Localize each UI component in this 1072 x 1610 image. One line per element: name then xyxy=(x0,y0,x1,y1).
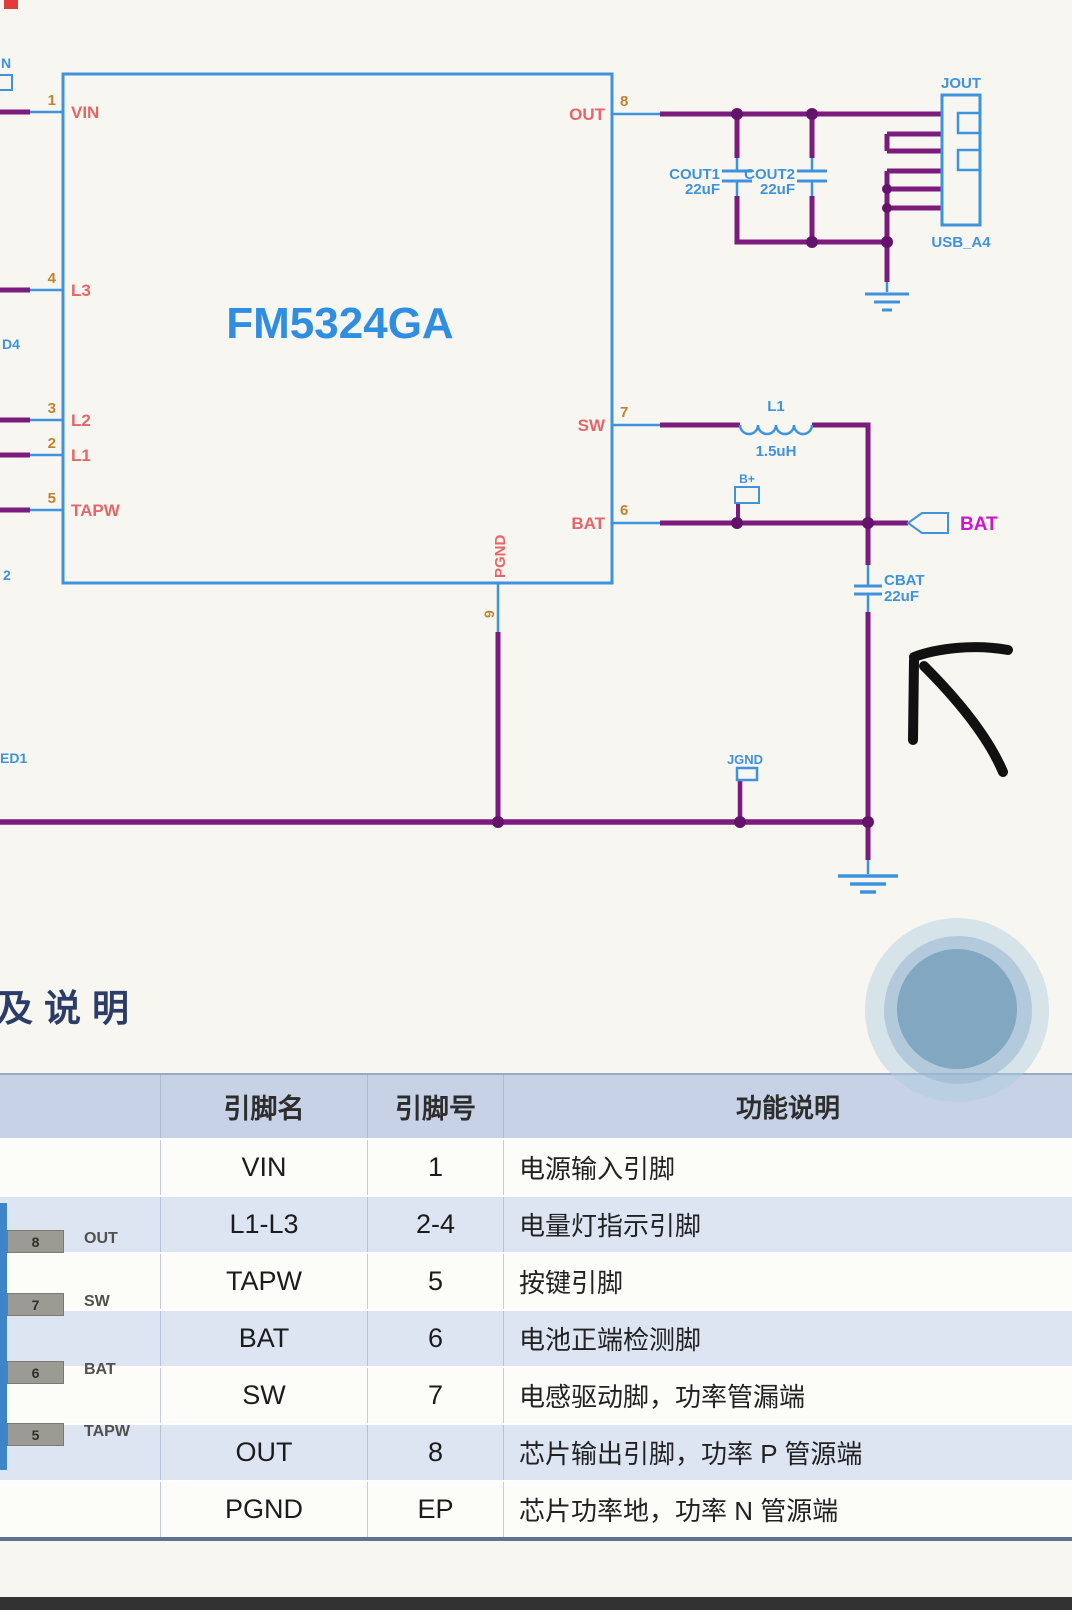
cout1-value: 22uF xyxy=(685,181,720,198)
l1-value: 1.5uH xyxy=(756,443,797,460)
usb-ground-symbol xyxy=(865,282,909,310)
pin-num-9: 9 xyxy=(481,610,497,618)
cell-function: 芯片功率地，功率 N 管源端 xyxy=(503,1482,1072,1537)
ic-fm5324ga: FM5324GA xyxy=(63,74,612,583)
watermark-circle-button[interactable] xyxy=(897,949,1017,1069)
table-row: SW 7 电感驱动脚，功率管漏端 xyxy=(0,1368,1072,1425)
pin-num-4: 4 xyxy=(48,270,57,287)
edge-fragment-sw2: 2 xyxy=(3,567,11,583)
table-row: TAPW 5 按键引脚 xyxy=(0,1254,1072,1311)
section-heading: 及说明 xyxy=(0,978,140,1032)
package-pin-number: 5 xyxy=(32,1427,40,1443)
pin-num-6: 6 xyxy=(620,502,628,519)
cell-pin-name: OUT xyxy=(160,1425,367,1480)
header-pin-number: 引脚号 xyxy=(367,1075,503,1138)
cell-function: 按键引脚 xyxy=(503,1254,1072,1309)
cell-pin-name: VIN xyxy=(160,1140,367,1195)
bplus-flag: B+ xyxy=(735,472,759,503)
bplus-label: B+ xyxy=(739,472,755,486)
table-row: OUT 8 芯片输出引脚，功率 P 管源端 xyxy=(0,1425,1072,1482)
l1-ref: L1 xyxy=(767,398,785,415)
table-row: BAT 6 电池正端检测脚 xyxy=(0,1311,1072,1368)
pin-name-l2: L2 xyxy=(71,411,91,430)
pin-num-1: 1 xyxy=(48,92,56,109)
package-body-edge xyxy=(0,1203,7,1470)
cell-pin-name: L1-L3 xyxy=(160,1197,367,1252)
package-pin: 8 xyxy=(7,1230,64,1253)
pin-name-pgnd: PGND xyxy=(492,534,509,578)
circuit-schematic: FM5324GA xyxy=(0,0,1072,930)
bat-ground-symbol xyxy=(838,860,898,892)
package-pin: 5 xyxy=(7,1423,64,1446)
cbat-capacitor xyxy=(854,565,882,612)
pin-num-5: 5 xyxy=(48,490,56,507)
cell-function: 电感驱动脚，功率管漏端 xyxy=(503,1368,1072,1423)
cell-pin-name: BAT xyxy=(160,1311,367,1366)
package-pin-number: 7 xyxy=(32,1297,40,1313)
cell-function: 电池正端检测脚 xyxy=(503,1311,1072,1366)
cell-function: 电量灯指示引脚 xyxy=(503,1197,1072,1252)
wires xyxy=(0,112,942,860)
bottom-dark-band xyxy=(0,1597,1072,1610)
usb-part-name: USB_A4 xyxy=(931,234,991,251)
package-pin-label: BAT xyxy=(84,1361,154,1379)
usb-connector xyxy=(942,95,980,225)
cell-pin-name: SW xyxy=(160,1368,367,1423)
pin-name-bat: BAT xyxy=(571,514,605,533)
ic-title: FM5324GA xyxy=(226,299,453,348)
pin-name-l1: L1 xyxy=(71,446,91,465)
cbat-value: 22uF xyxy=(884,588,919,605)
pin-num-8: 8 xyxy=(620,93,628,110)
jgnd-flag: JGND xyxy=(727,752,763,780)
table-row: PGND EP 芯片功率地，功率 N 管源端 xyxy=(0,1482,1072,1537)
pin-num-3: 3 xyxy=(48,400,56,417)
pin-numbers: 1 4 3 2 5 8 7 6 9 xyxy=(48,92,629,618)
cell-pin-number: 1 xyxy=(367,1140,503,1195)
cell-pin-number: 6 xyxy=(367,1311,503,1366)
pin-num-2: 2 xyxy=(48,435,56,452)
cell-pin-number: EP xyxy=(367,1482,503,1537)
header-blank xyxy=(0,1075,160,1138)
junction-dots xyxy=(492,108,893,828)
package-pin-label: SW xyxy=(84,1293,154,1311)
cbat-ref: CBAT xyxy=(884,572,925,589)
package-pin-label: TAPW xyxy=(84,1423,154,1441)
package-pin-label: OUT xyxy=(84,1230,154,1248)
cell-pin-number: 5 xyxy=(367,1254,503,1309)
package-pin-number: 8 xyxy=(32,1234,40,1250)
header-pin-name: 引脚名 xyxy=(160,1075,367,1138)
pin-name-l3: L3 xyxy=(71,281,91,300)
cell-pin-number: 2-4 xyxy=(367,1197,503,1252)
edge-fragments: N D4 2 ED1 xyxy=(0,55,27,766)
cell-pin-number: 8 xyxy=(367,1425,503,1480)
usb-refdes: JOUT xyxy=(941,75,981,92)
cell-pin-name: PGND xyxy=(160,1482,367,1537)
bat-net-flag: BAT xyxy=(908,513,998,535)
pin-name-tapw: TAPW xyxy=(71,501,121,520)
edge-fragment-vin: N xyxy=(1,55,11,71)
hand-drawn-arrow xyxy=(913,647,1008,772)
bat-net-label: BAT xyxy=(960,514,998,535)
red-corner-mark xyxy=(4,0,18,9)
cell-function: 电源输入引脚 xyxy=(503,1140,1072,1195)
package-pin: 6 xyxy=(7,1361,64,1384)
edge-fragment-led1: ED1 xyxy=(0,750,27,766)
cell-pin-number: 7 xyxy=(367,1368,503,1423)
pin-function-table: 引脚名 引脚号 功能说明 VIN 1 电源输入引脚 L1-L3 2-4 电量灯指… xyxy=(0,1073,1072,1541)
cell-function: 芯片输出引脚，功率 P 管源端 xyxy=(503,1425,1072,1480)
package-pin-number: 6 xyxy=(32,1365,40,1381)
package-pin: 7 xyxy=(7,1293,64,1316)
pin-name-sw: SW xyxy=(578,416,606,435)
pin-name-out: OUT xyxy=(569,105,606,124)
pin-name-vin: VIN xyxy=(71,103,99,122)
cout2-value: 22uF xyxy=(760,181,795,198)
jgnd-label: JGND xyxy=(727,752,763,767)
pin-stubs-blue xyxy=(30,112,660,632)
cell-pin-name: TAPW xyxy=(160,1254,367,1309)
pin-num-7: 7 xyxy=(620,404,628,421)
inductor-l1: L1 1.5uH xyxy=(740,398,812,460)
edge-fragment-led4: D4 xyxy=(2,336,20,352)
table-row: VIN 1 电源输入引脚 xyxy=(0,1140,1072,1197)
table-row: L1-L3 2-4 电量灯指示引脚 xyxy=(0,1197,1072,1254)
